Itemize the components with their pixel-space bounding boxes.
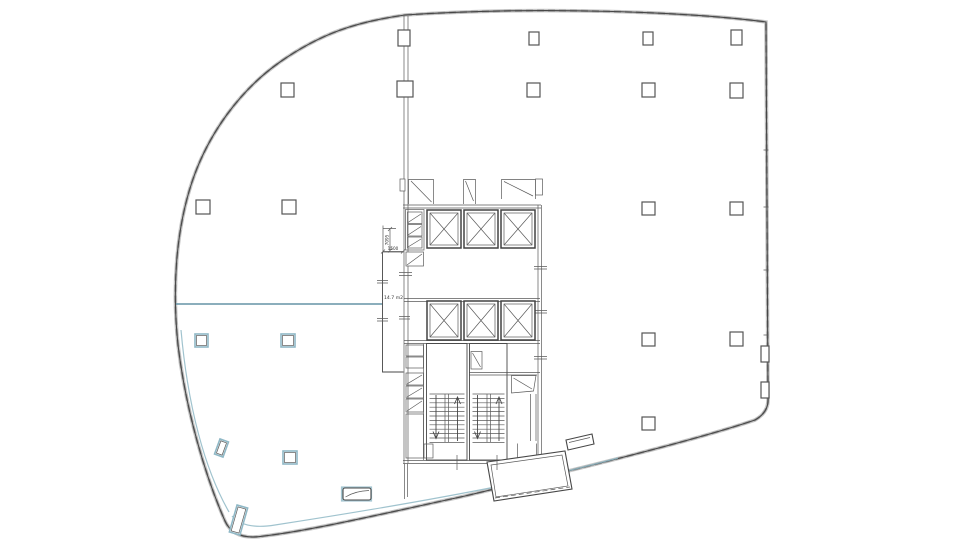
- room-area-label: 14.7 m2: [384, 295, 403, 301]
- column: [527, 83, 540, 97]
- teal-column: [281, 334, 295, 347]
- wall-column: [761, 382, 769, 398]
- building-outline: [175, 11, 768, 537]
- column: [282, 200, 296, 214]
- wall-stub: [536, 179, 543, 195]
- column: [642, 417, 655, 430]
- column: [643, 32, 653, 45]
- floor-plan-canvas: 7095 1500 14.7 m2: [0, 0, 974, 548]
- floor-plan-drawing: 7095 1500 14.7 m2: [0, 0, 974, 548]
- column: [730, 202, 743, 215]
- elevator-shaft-2: [464, 210, 498, 248]
- column: [642, 83, 655, 97]
- elevator-shaft-1: [427, 210, 461, 248]
- wall-column: [397, 81, 413, 97]
- column: [731, 30, 742, 45]
- wall-column: [398, 30, 410, 46]
- teal-column: [283, 451, 297, 464]
- elevator-shaft-5: [464, 301, 498, 340]
- elevator-bank-upper: [427, 210, 535, 248]
- teal-column: [195, 334, 208, 347]
- column: [196, 200, 210, 214]
- column: [529, 32, 539, 45]
- dim-vertical-label: 7095: [385, 234, 390, 245]
- dim-horizontal-label: 1500: [388, 246, 399, 251]
- column: [642, 202, 655, 215]
- wall-stub: [400, 179, 405, 191]
- bench: [343, 488, 371, 500]
- column: [642, 333, 655, 346]
- wall-column: [761, 346, 769, 362]
- column: [730, 332, 743, 346]
- elevator-shaft-6: [501, 301, 535, 340]
- elevator-shaft-4: [427, 301, 461, 340]
- column: [730, 83, 743, 98]
- column: [281, 83, 294, 97]
- elevator-shaft-3: [501, 210, 535, 248]
